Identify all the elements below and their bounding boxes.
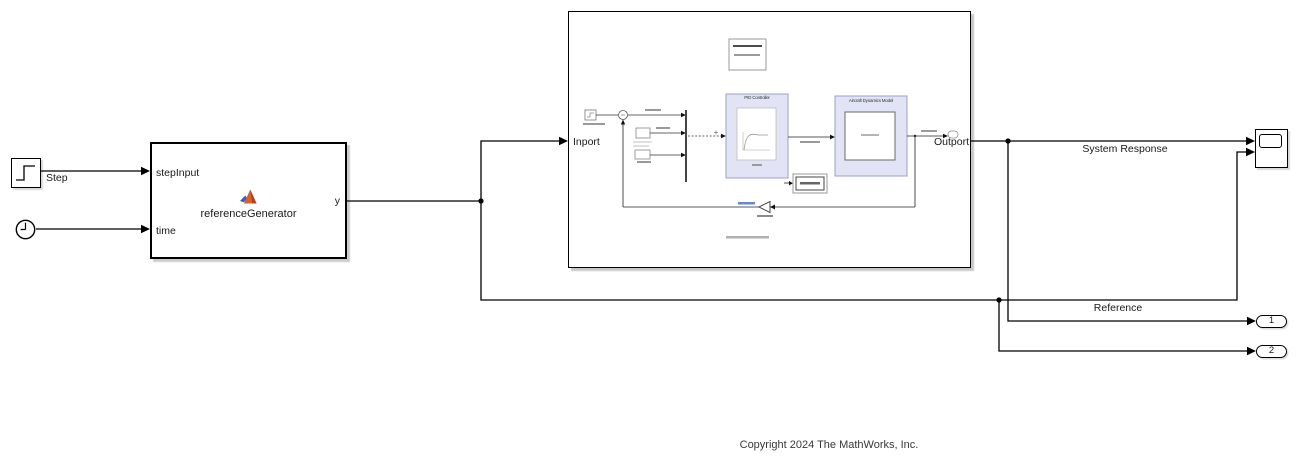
outport-1-label: 1 xyxy=(1269,315,1274,326)
refgen-port-time: time xyxy=(156,225,176,237)
signal-label-reference[interactable]: Reference xyxy=(1040,302,1196,314)
refgen-label: referenceGenerator xyxy=(152,208,345,220)
preview-controller-label: PID Controller xyxy=(726,95,788,100)
step-block[interactable] xyxy=(11,158,41,188)
matlab-logo-icon xyxy=(239,188,259,206)
clock-block[interactable] xyxy=(15,219,36,240)
model-inport-label: Inport xyxy=(573,136,600,148)
copyright-annotation: Copyright 2024 The MathWorks, Inc. xyxy=(699,439,959,451)
model-outport-label: Outport xyxy=(934,136,969,148)
simulink-diagram-canvas: stepInput time y referenceGenerator Inpo… xyxy=(0,0,1297,465)
scope-block[interactable] xyxy=(1255,129,1288,168)
scope-screen-icon xyxy=(1259,134,1282,148)
refgen-port-y: y xyxy=(335,195,340,207)
outport-2-block[interactable]: 2 xyxy=(1256,345,1287,358)
clock-icon xyxy=(15,219,36,240)
outport-2-label: 2 xyxy=(1269,345,1274,356)
refgen-port-stepinput: stepInput xyxy=(156,167,199,179)
signal-label-system-response[interactable]: System Response xyxy=(1040,143,1210,155)
outport-1-block[interactable]: 1 xyxy=(1256,315,1287,328)
model-block[interactable]: Inport Outport xyxy=(568,11,971,268)
reference-generator-block[interactable]: stepInput time y referenceGenerator xyxy=(150,142,347,259)
step-icon xyxy=(12,159,39,186)
preview-plant-label: Aircraft Dynamics Model xyxy=(835,98,907,103)
step-block-label: Step xyxy=(46,172,68,184)
